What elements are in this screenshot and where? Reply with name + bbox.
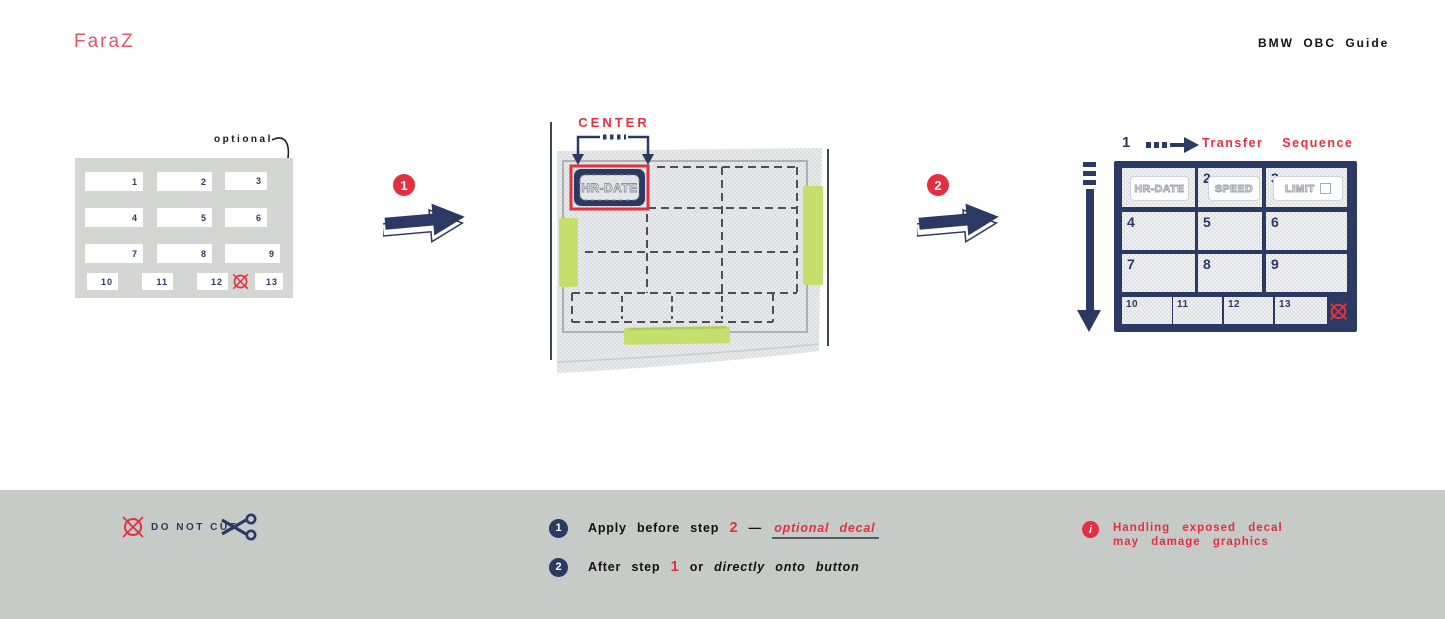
cell-number: 10 xyxy=(1126,299,1138,310)
legend2-prefix: After step xyxy=(588,560,660,574)
grid-cell-13: 13 xyxy=(1275,297,1327,324)
tape-right xyxy=(803,186,823,285)
grid-cell-9: 9 xyxy=(1266,254,1347,292)
cell-number: 4 xyxy=(1127,214,1135,230)
cell-number: 11 xyxy=(1177,299,1189,310)
optional-label: optional xyxy=(214,134,273,145)
warning-line1: Handling exposed decal xyxy=(1113,521,1283,535)
legend1-prefix: Apply before step xyxy=(588,521,719,535)
legend2-badge: 2 xyxy=(549,558,568,577)
button-label: LIMIT xyxy=(1285,183,1315,195)
grid-cell-7: 7 xyxy=(1122,254,1195,292)
tape-left xyxy=(559,218,578,287)
decal-cell: 9 xyxy=(225,244,280,263)
step2-group: 2 xyxy=(917,174,1007,236)
transfer-step-number: 1 xyxy=(1122,134,1130,151)
grid-cell-8: 8 xyxy=(1198,254,1262,292)
decal-cell: 3 xyxy=(225,172,267,190)
decal-cell: 5 xyxy=(157,208,212,227)
button-label: SPEED xyxy=(1215,183,1253,195)
no-cut-icon xyxy=(120,514,146,540)
transfer-arrow-icon xyxy=(1146,137,1200,153)
cell-number: 6 xyxy=(1271,214,1279,230)
legend1-emphasis: optional decal xyxy=(772,521,879,539)
decal-cell: 7 xyxy=(85,244,143,263)
decal-label: HR-DATE xyxy=(581,181,638,195)
legend2-emphasis: directly onto button xyxy=(714,560,859,574)
application-diagram: HR-DATE CENTER xyxy=(538,95,840,395)
decal-cell: 1 xyxy=(85,172,143,191)
grid-cell-11: 11 xyxy=(1173,297,1222,324)
scissors-icon xyxy=(221,512,258,543)
hr-date-decal: HR-DATE xyxy=(571,166,648,209)
grid-cell-5: 5 xyxy=(1198,212,1262,250)
transfer-title: Transfer Sequence xyxy=(1202,136,1353,150)
sequence-down-arrow-icon xyxy=(1076,160,1102,334)
legend2-text: After step 1 or directly onto button xyxy=(588,559,860,575)
brand-logo: FaraZ xyxy=(74,31,135,53)
decal-cell: 11 xyxy=(142,273,173,290)
cell-number: 13 xyxy=(1279,299,1291,310)
grid-cell-3: 3 LIMIT xyxy=(1266,168,1347,207)
obc-button-grid: HR-DATE 2 SPEED 3 LIMIT 4 5 6 7 8 xyxy=(1114,161,1357,332)
decal-cell: 12 xyxy=(197,273,228,290)
cell-number: 12 xyxy=(1228,299,1240,310)
center-label: CENTER xyxy=(578,115,649,130)
cell-number: 7 xyxy=(1127,256,1135,272)
step2-arrow-icon xyxy=(917,198,1007,244)
cell-number: 9 xyxy=(1271,256,1279,272)
cell-number: 5 xyxy=(1203,214,1211,230)
page: FaraZ BMW OBC Guide optional 1 2 3 4 5 6… xyxy=(0,0,1445,619)
legend1-badge: 1 xyxy=(549,519,568,538)
footer-bar: DO NOT CUT 1 Apply before step 2 — optio… xyxy=(0,490,1445,619)
decal-sheet: 1 2 3 4 5 6 7 8 9 10 11 12 13 xyxy=(75,158,293,298)
decal-cell: 8 xyxy=(157,244,212,263)
grid-cell-2: 2 SPEED xyxy=(1198,168,1262,207)
legend1-dash: — xyxy=(749,521,762,535)
legend1-text: Apply before step 2 — optional decal xyxy=(588,520,879,536)
step2-badge: 2 xyxy=(927,174,949,196)
document-title: BMW OBC Guide xyxy=(1258,36,1389,50)
button-limit: LIMIT xyxy=(1273,176,1343,201)
button-hr-date: HR-DATE xyxy=(1130,176,1189,201)
warning-text: Handling exposed decal may damage graphi… xyxy=(1113,521,1283,549)
button-speed: SPEED xyxy=(1208,176,1260,201)
grid-cell-12: 12 xyxy=(1224,297,1273,324)
grid-cell-4: 4 xyxy=(1122,212,1195,250)
decal-cell: 2 xyxy=(157,172,212,191)
cell-number: 8 xyxy=(1203,256,1211,272)
no-cut-icon xyxy=(1327,300,1350,323)
grid-cell-6: 6 xyxy=(1266,212,1347,250)
decal-cell: 6 xyxy=(225,208,267,227)
legend-step1: 1 Apply before step 2 — optional decal xyxy=(549,518,879,538)
step1-group: 1 xyxy=(383,174,473,236)
legend1-step-ref: 2 xyxy=(729,520,738,536)
legend2-connector: or xyxy=(690,560,704,574)
decal-cell: 10 xyxy=(87,273,118,290)
legend2-step-ref: 1 xyxy=(671,559,680,575)
no-cut-icon xyxy=(230,271,251,292)
warning-line2: may damage graphics xyxy=(1113,535,1283,549)
button-label: HR-DATE xyxy=(1135,183,1185,195)
step1-badge: 1 xyxy=(393,174,415,196)
decal-cell: 4 xyxy=(85,208,143,227)
limit-checkbox-icon xyxy=(1320,183,1331,194)
decal-cell: 13 xyxy=(255,273,283,290)
step1-arrow-icon xyxy=(383,198,473,244)
grid-cell-10: 10 xyxy=(1122,297,1172,324)
info-icon: i xyxy=(1082,521,1099,538)
legend-step2: 2 After step 1 or directly onto button xyxy=(549,557,860,577)
grid-cell-1: HR-DATE xyxy=(1122,168,1195,207)
